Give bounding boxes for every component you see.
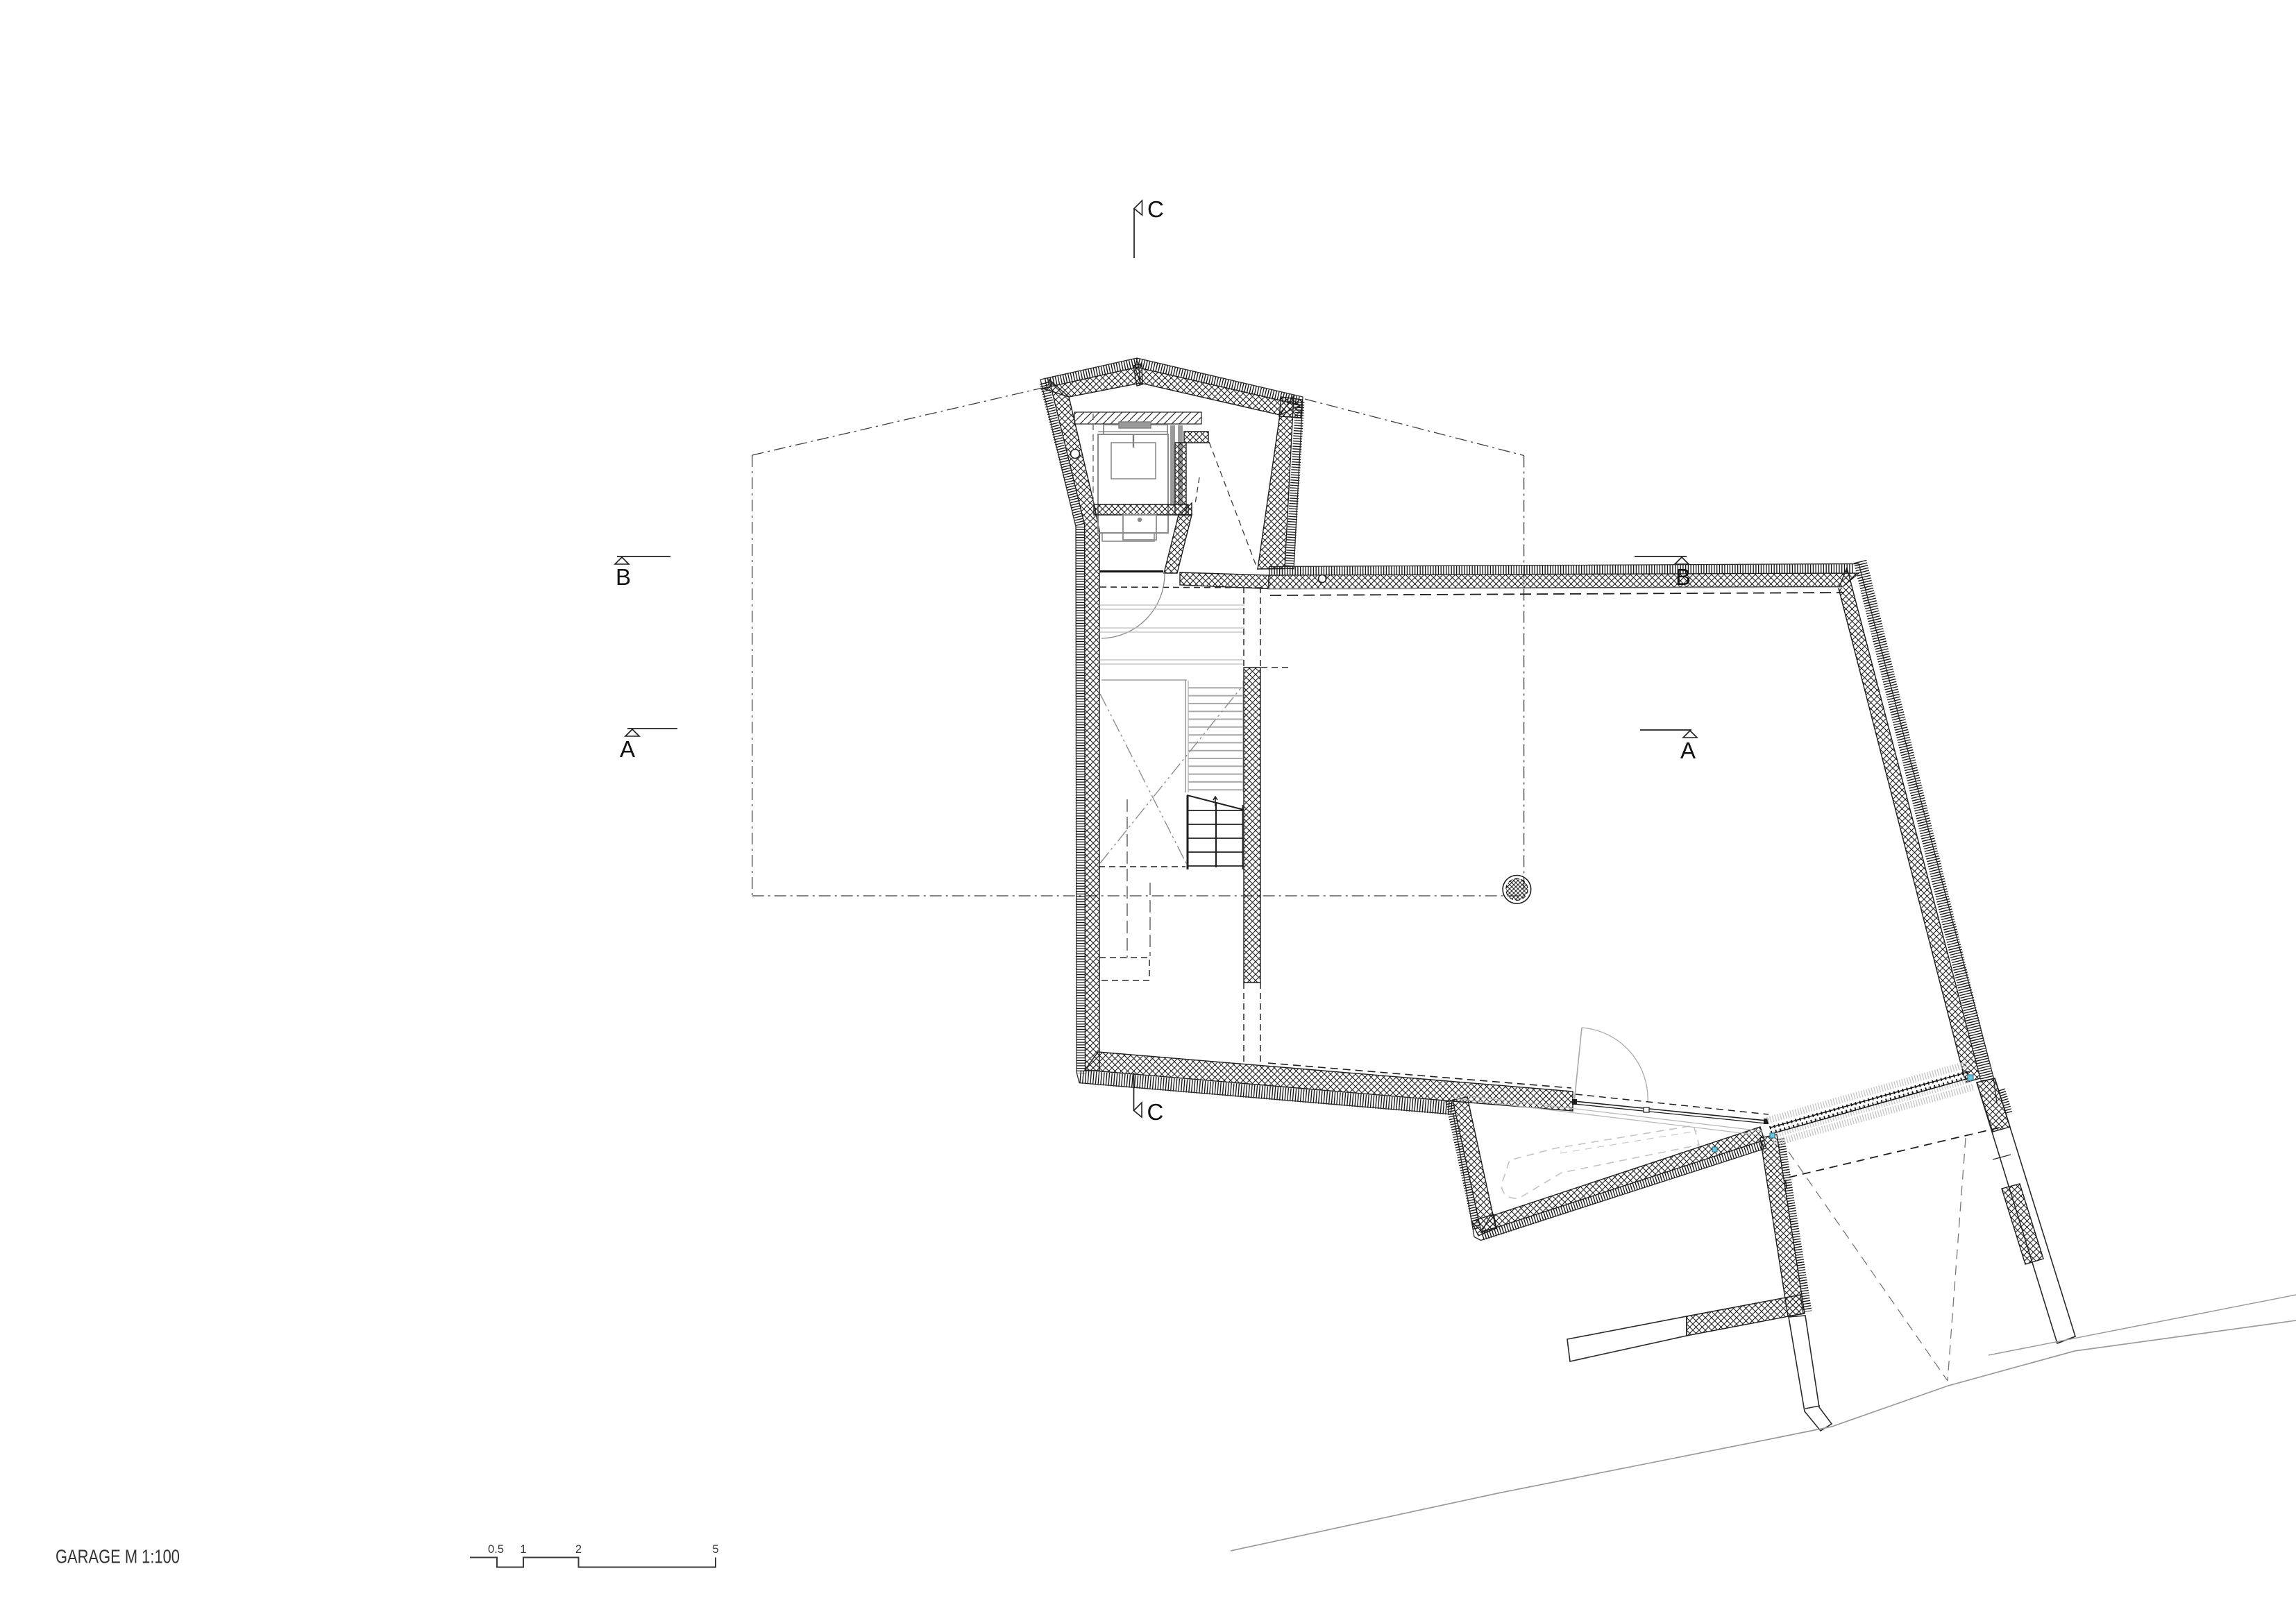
svg-text:B: B [616,564,631,590]
svg-text:B: B [1675,564,1691,590]
svg-text:GARAGE M 1:100: GARAGE M 1:100 [56,1546,180,1567]
svg-text:C: C [1147,196,1164,222]
svg-text:A: A [620,736,635,762]
svg-text:5: 5 [712,1543,718,1556]
svg-text:1: 1 [520,1543,526,1556]
svg-text:A: A [1680,738,1696,763]
svg-text:2: 2 [575,1543,582,1556]
svg-text:0.5: 0.5 [488,1543,504,1556]
svg-text:C: C [1147,1099,1164,1125]
